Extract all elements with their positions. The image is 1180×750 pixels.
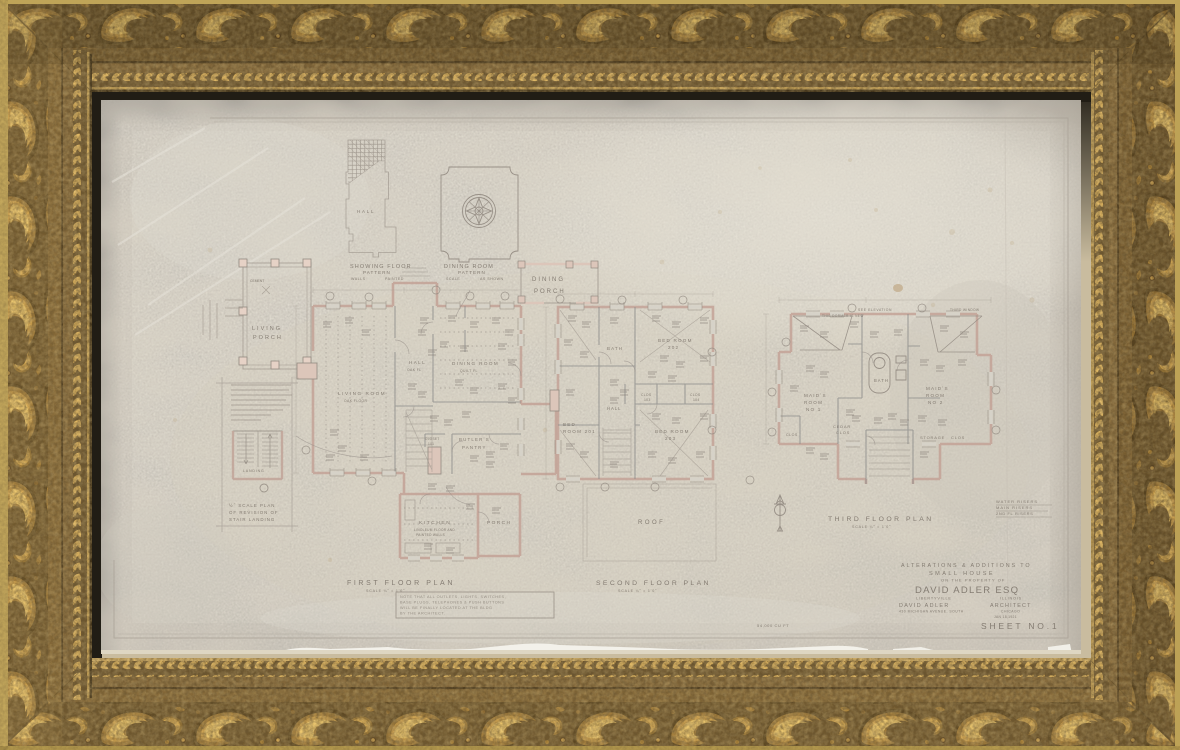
- svg-text:DINING: DINING: [532, 277, 565, 283]
- svg-text:½˝ SCALE PLAN: ½˝ SCALE PLAN: [229, 503, 275, 508]
- svg-text:HALL: HALL: [607, 406, 621, 411]
- svg-text:202: 202: [668, 345, 679, 350]
- svg-text:BATH: BATH: [874, 378, 889, 383]
- svg-text:ILLINOIS: ILLINOIS: [1000, 597, 1022, 601]
- svg-text:LIVING ROOM: LIVING ROOM: [338, 391, 386, 396]
- svg-text:ROOM 201: ROOM 201: [563, 429, 596, 434]
- svg-text:CLOS: CLOS: [690, 393, 701, 397]
- svg-text:WILL BE FINALLY LOCATED AT THE: WILL BE FINALLY LOCATED AT THE BLDG: [400, 606, 492, 610]
- svg-text:HALL: HALL: [357, 209, 375, 214]
- svg-text:BASE PLUGS, TELEPHONES & PUSH: BASE PLUGS, TELEPHONES & PUSH BUTTONS: [400, 601, 504, 605]
- svg-text:WALLS: WALLS: [351, 277, 366, 281]
- svg-text:SCALE ¼˝ = 1ʼ0˝: SCALE ¼˝ = 1ʼ0˝: [852, 525, 891, 529]
- svg-text:MAIDʼS: MAIDʼS: [926, 386, 949, 391]
- svg-text:104: 104: [693, 398, 700, 402]
- svg-text:SHEET NO.1: SHEET NO.1: [981, 621, 1059, 631]
- svg-text:DAVID ADLER: DAVID ADLER: [899, 603, 950, 609]
- svg-text:CLOSET: CLOSET: [425, 437, 440, 441]
- svg-text:MAIDʼS: MAIDʼS: [804, 393, 827, 398]
- svg-text:ROOM: ROOM: [804, 400, 823, 405]
- svg-text:CEMENT: CEMENT: [250, 279, 264, 283]
- svg-text:LIBERTYVILLE: LIBERTYVILLE: [916, 597, 952, 601]
- svg-text:103: 103: [644, 398, 651, 402]
- svg-text:54,000 CU FT: 54,000 CU FT: [757, 623, 789, 628]
- svg-text:SEE ELEVATION: SEE ELEVATION: [858, 308, 892, 312]
- svg-text:OAK FLOOR: OAK FLOOR: [344, 399, 368, 403]
- svg-text:STORAGE: STORAGE: [920, 435, 945, 440]
- svg-text:SECOND FLOOR PLAN: SECOND FLOOR PLAN: [596, 580, 711, 587]
- svg-text:PAINTED WALLS: PAINTED WALLS: [416, 533, 445, 537]
- svg-text:CLOS: CLOS: [951, 435, 965, 440]
- svg-text:NO 2: NO 2: [928, 400, 944, 405]
- svg-text:ARCHITECT: ARCHITECT: [990, 603, 1032, 609]
- svg-text:BED ROOM: BED ROOM: [658, 338, 693, 343]
- svg-text:PORCH: PORCH: [487, 520, 511, 526]
- svg-text:NO 1: NO 1: [806, 407, 822, 412]
- svg-text:PAINTED: PAINTED: [385, 277, 404, 281]
- svg-text:THIRD WINDOW: THIRD WINDOW: [950, 308, 979, 312]
- svg-text:LINOLEUM FLOOR AND: LINOLEUM FLOOR AND: [414, 528, 455, 532]
- svg-text:LIVING: LIVING: [252, 326, 282, 332]
- svg-text:BATH: BATH: [607, 346, 623, 351]
- svg-text:OAK FL: OAK FL: [407, 368, 421, 372]
- svg-text:BY THE ARCHITECT.: BY THE ARCHITECT.: [400, 612, 445, 616]
- svg-text:PATTERN: PATTERN: [458, 270, 486, 275]
- svg-text:430 MICHIGAN AVENUE, SOUTH: 430 MICHIGAN AVENUE, SOUTH: [899, 610, 964, 614]
- svg-text:ON THE PROPERTY OF: ON THE PROPERTY OF: [941, 578, 1005, 583]
- svg-text:AS SHOWN: AS SHOWN: [480, 277, 504, 281]
- svg-text:KITCHEN: KITCHEN: [419, 520, 451, 526]
- svg-text:203: 203: [665, 436, 676, 441]
- svg-text:ALTERATIONS & ADDITIONS TO: ALTERATIONS & ADDITIONS TO: [901, 563, 1031, 569]
- svg-text:PANTRY: PANTRY: [462, 445, 487, 450]
- svg-text:THIS DORMER IS NEW: THIS DORMER IS NEW: [822, 314, 864, 318]
- svg-text:THIRD FLOOR PLAN: THIRD FLOOR PLAN: [828, 516, 934, 523]
- svg-text:CLOS: CLOS: [836, 430, 850, 435]
- svg-text:ROOF: ROOF: [638, 520, 665, 526]
- svg-text:BED: BED: [563, 422, 576, 427]
- svg-text:BUTLERʼS: BUTLERʼS: [459, 437, 490, 442]
- svg-text:WATER RISERS: WATER RISERS: [996, 499, 1038, 504]
- svg-text:FIRST FLOOR PLAN: FIRST FLOOR PLAN: [347, 580, 455, 587]
- svg-text:SCALE: SCALE: [446, 277, 460, 281]
- svg-text:DINING ROOM: DINING ROOM: [452, 361, 499, 366]
- svg-text:PATTERN: PATTERN: [363, 270, 391, 275]
- svg-text:101: 101: [428, 442, 434, 446]
- svg-text:SMALL HOUSE: SMALL HOUSE: [929, 571, 995, 577]
- svg-text:JAN 18,1921: JAN 18,1921: [994, 615, 1017, 619]
- svg-text:CEDAR: CEDAR: [833, 424, 851, 429]
- svg-text:SCALE ¼˝ = 1ʼ0˝: SCALE ¼˝ = 1ʼ0˝: [618, 589, 657, 593]
- svg-text:CLOS: CLOS: [786, 433, 798, 437]
- svg-text:DAVID ADLER ESQ: DAVID ADLER ESQ: [915, 585, 1019, 596]
- svg-text:PORCH: PORCH: [253, 335, 283, 341]
- svg-text:QUILT FL: QUILT FL: [460, 369, 478, 373]
- svg-text:MAIN RISERS: MAIN RISERS: [996, 505, 1033, 510]
- svg-text:CHICAGO: CHICAGO: [1001, 610, 1020, 614]
- svg-text:STAIR LANDING: STAIR LANDING: [229, 517, 275, 522]
- svg-text:2ND FL RISERS: 2ND FL RISERS: [996, 511, 1033, 516]
- svg-text:HALL: HALL: [409, 360, 426, 365]
- svg-text:ROOM: ROOM: [926, 393, 945, 398]
- svg-text:BED ROOM: BED ROOM: [655, 429, 690, 434]
- svg-text:LANDING: LANDING: [243, 469, 265, 473]
- svg-text:CLOS: CLOS: [641, 393, 652, 397]
- svg-text:NOTE THAT ALL OUTLETS, LIGHTS,: NOTE THAT ALL OUTLETS, LIGHTS, SWITCHES,: [400, 595, 506, 599]
- svg-text:OF REVISION OF: OF REVISION OF: [229, 510, 279, 515]
